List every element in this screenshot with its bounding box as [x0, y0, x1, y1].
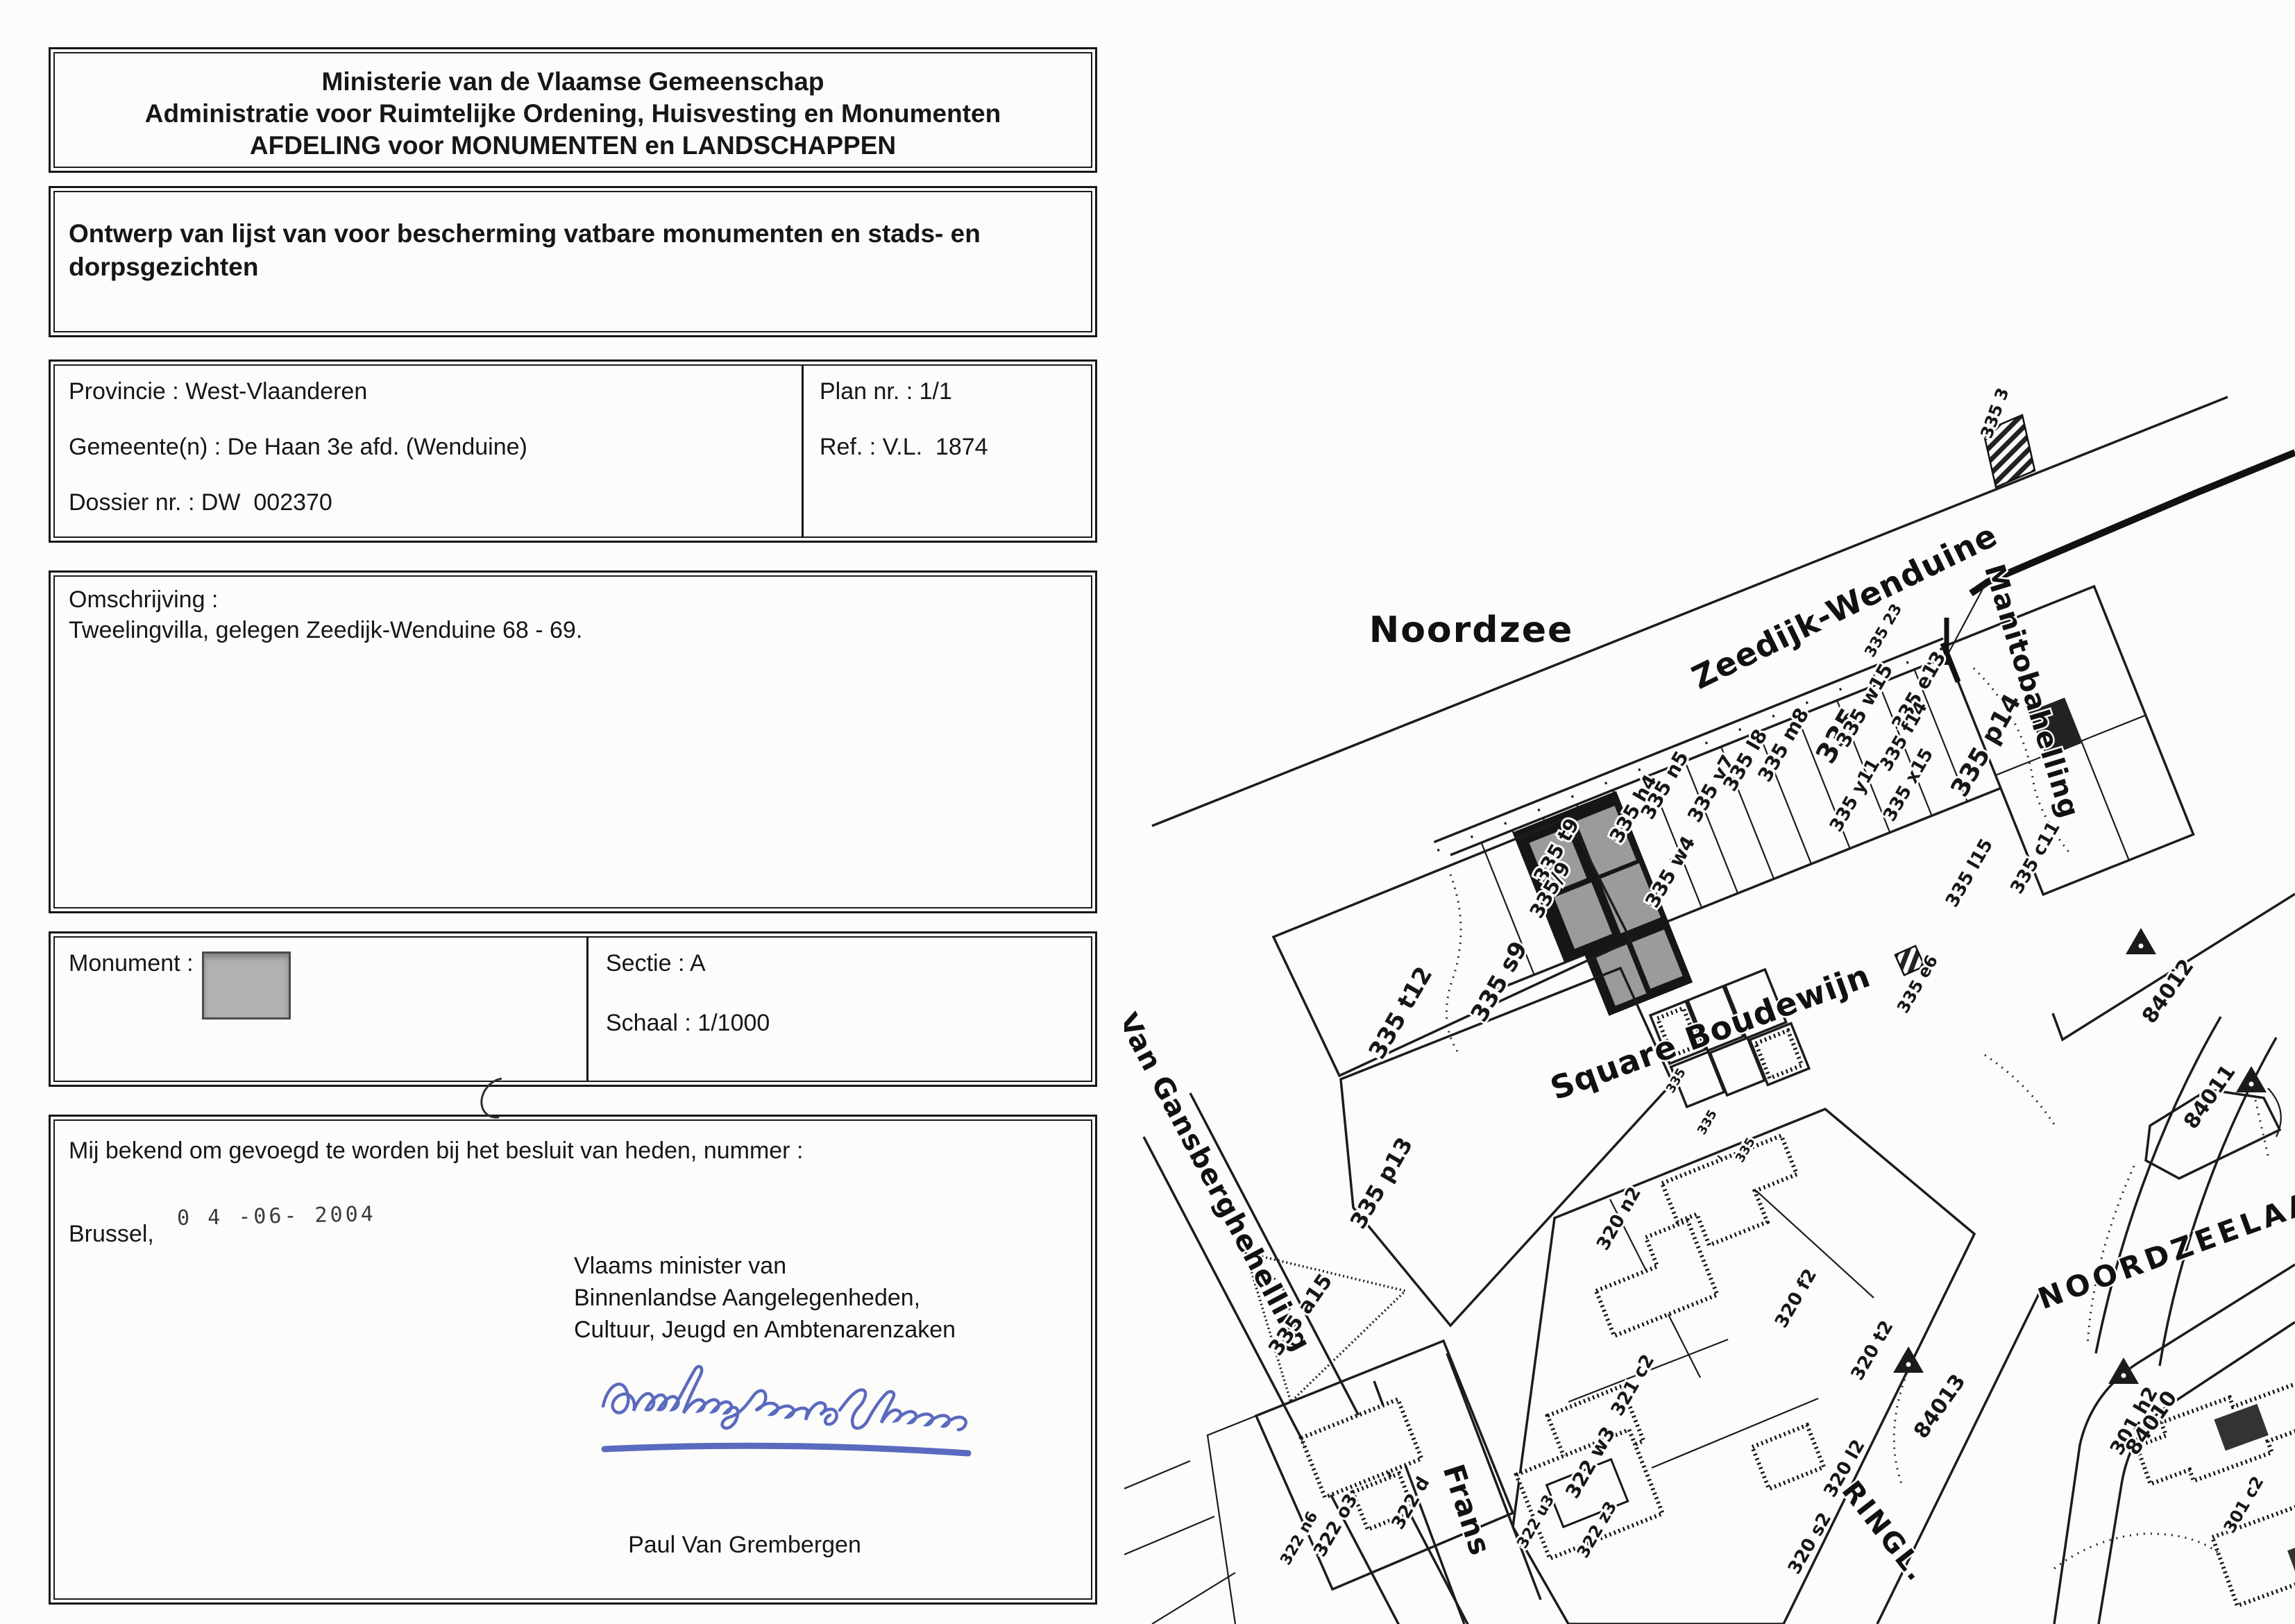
street-label: Noordzee [1369, 609, 1574, 651]
parcel-label: 320 f2 [1771, 1265, 1821, 1331]
document-title: Ontwerp van lijst van voor bescherming v… [69, 217, 1053, 284]
sectie-field: Sectie : A [606, 950, 706, 977]
building-footprint [1752, 1425, 1824, 1489]
dune-road-curves [2096, 1017, 2276, 1366]
plan-field: Plan nr. : 1/1 [820, 378, 952, 405]
omschrijving-box: Omschrijving : Tweelingvilla, gelegen Ze… [49, 570, 1097, 913]
survey-marker-label: 84011 [2179, 1060, 2241, 1134]
survey-markers: 84012840118401384010 [1893, 928, 2267, 1460]
decree-place: Brussel, [69, 1221, 154, 1248]
monument-legend-swatch [202, 951, 291, 1020]
signature-image [593, 1339, 989, 1468]
header-line3: AFDELING voor MONUMENTEN en LANDSCHAPPEN [51, 130, 1095, 162]
ref-field: Ref. : V.L. 1874 [820, 434, 988, 461]
header-line1: Ministerie van de Vlaamse Gemeenschap [51, 66, 1095, 98]
parcel-label: 321 c2 [1607, 1351, 1659, 1420]
signer-name: Paul Van Grembergen [564, 1532, 925, 1559]
parcel-label: 335 [1695, 1108, 1720, 1137]
parcel-label: 335 l15 [1942, 836, 1997, 911]
cadastral-map: NoordzeeZeedijk-WenduineManitobahellingS… [1124, 389, 2295, 1624]
parcel-label: 322 n6 [1277, 1509, 1321, 1568]
parcel-label: 335 w4 [1641, 832, 1700, 912]
column-divider [802, 364, 804, 538]
parcel-label: 335 p13 [1345, 1133, 1419, 1233]
survey-marker-label: 84012 [2137, 955, 2199, 1029]
parcel-label: 322 o3 [1310, 1491, 1362, 1561]
survey-marker-icon [2236, 1066, 2267, 1092]
omschrijving-label: Omschrijving : [69, 586, 218, 614]
omschrijving-value: Tweelingvilla, gelegen Zeedijk-Wenduine … [69, 617, 582, 644]
column-divider [586, 936, 588, 1082]
schaal-field: Schaal : 1/1000 [606, 1010, 770, 1037]
header-line2: Administratie voor Ruimtelijke Ordening,… [51, 98, 1095, 130]
parcel-label: 320 n2 [1593, 1183, 1645, 1254]
provincie-field: Provincie : West-Vlaanderen [69, 378, 367, 405]
decree-line: Mij bekend om gevoegd te worden bij het … [69, 1137, 803, 1165]
street-label: Manitobahelling [1978, 561, 2085, 822]
signature-underline [604, 1446, 968, 1453]
header-box: Ministerie van de Vlaamse Gemeenschap Ad… [49, 47, 1097, 173]
corner-connector [1947, 585, 1985, 657]
survey-marker-icon [1893, 1346, 1924, 1373]
parcel-label: 335 c11 [2006, 818, 2064, 898]
dotted-paths [1894, 1055, 2268, 1568]
monument-label: Monument : [69, 950, 194, 977]
province-box: Provincie : West-Vlaanderen Gemeente(n) … [49, 360, 1097, 543]
monument-box: Monument : Sectie : A Schaal : 1/1000 [49, 931, 1097, 1087]
parcel-label: 335 s9 [1465, 937, 1533, 1027]
date-stamp: 0 4 -06- 2004 [177, 1202, 376, 1230]
parcel-label: 320 t2 [1847, 1317, 1898, 1384]
street-label: NOORDZEELAAN [2033, 1175, 2295, 1317]
survey-marker-label: 84013 [1909, 1370, 1971, 1444]
survey-marker-icon [2108, 1357, 2139, 1384]
document-page: Ministerie van de Vlaamse Gemeenschap Ad… [0, 0, 2295, 1624]
minister-line: Vlaams minister van [574, 1250, 956, 1282]
left-edge-parcels [1124, 1416, 1256, 1624]
signature-stroke [603, 1367, 966, 1430]
parcel-labels: 335 t9335/9335 s9335 t12335 p13335 a1533… [1264, 389, 2267, 1578]
street-label: Van Gansberghehelling [1124, 1008, 1317, 1357]
seafront-parcel-strip [1434, 580, 2193, 1097]
minister-title-block: Vlaams minister vanBinnenlandse Aangeleg… [574, 1250, 956, 1346]
gemeente-field: Gemeente(n) : De Haan 3e afd. (Wenduine) [69, 434, 527, 461]
parcel-label: 335 p14 [1945, 689, 2026, 802]
survey-marker-icon [2126, 928, 2156, 954]
parcel-label: 335 t12 [1364, 962, 1439, 1064]
minister-line: Binnenlandse Aangelegenheden, [574, 1282, 956, 1314]
dossier-field: Dossier nr. : DW 002370 [69, 489, 332, 516]
title-box: Ontwerp van lijst van voor bescherming v… [49, 186, 1097, 337]
street-label: Frans [1437, 1460, 1498, 1560]
street-label: RINGL. [1836, 1475, 1933, 1589]
